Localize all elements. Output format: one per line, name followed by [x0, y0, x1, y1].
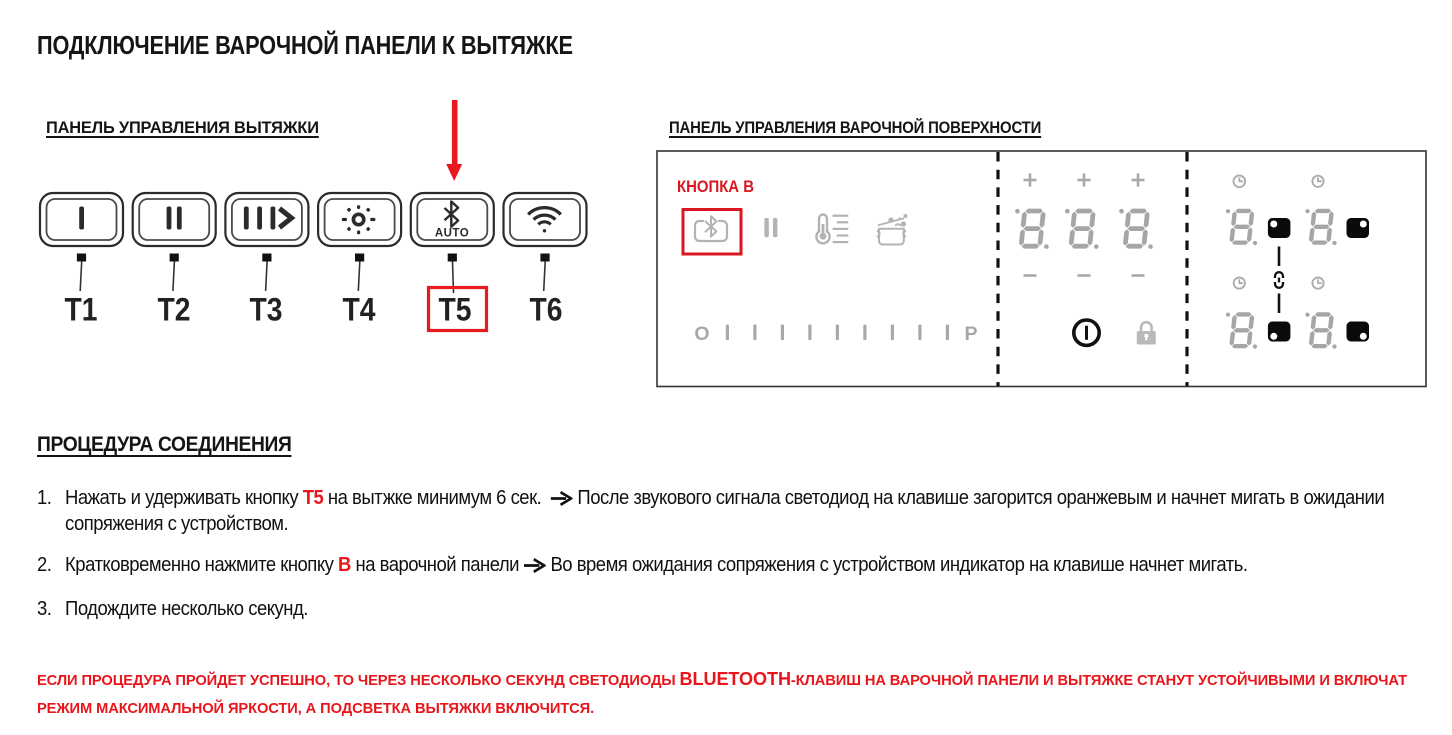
svg-text:T2: T2 [158, 292, 191, 328]
svg-text:T6: T6 [530, 292, 563, 328]
svg-text:O: O [694, 323, 709, 345]
svg-text:P: P [964, 323, 977, 345]
svg-text:AUTO: AUTO [435, 228, 469, 240]
svg-text:T3: T3 [250, 292, 283, 328]
svg-text:T4: T4 [343, 292, 376, 328]
svg-text:КНОПКА В: КНОПКА В [677, 178, 754, 196]
svg-text:T1: T1 [65, 292, 98, 328]
svg-text:T5: T5 [439, 292, 472, 328]
